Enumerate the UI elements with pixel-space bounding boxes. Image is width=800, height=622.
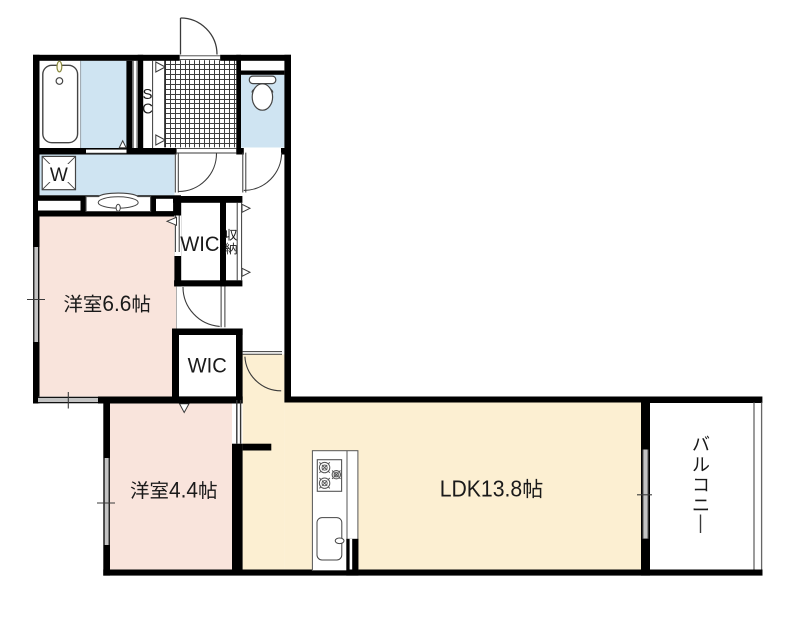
svg-text:W: W: [50, 165, 68, 186]
svg-text:6.6: 6.6: [102, 291, 131, 316]
svg-text:LDK13.8: LDK13.8: [440, 476, 523, 502]
svg-text:WIC: WIC: [180, 232, 219, 256]
svg-text:WIC: WIC: [188, 354, 227, 378]
svg-text:4.4: 4.4: [169, 478, 198, 503]
svg-text:C: C: [142, 101, 153, 118]
